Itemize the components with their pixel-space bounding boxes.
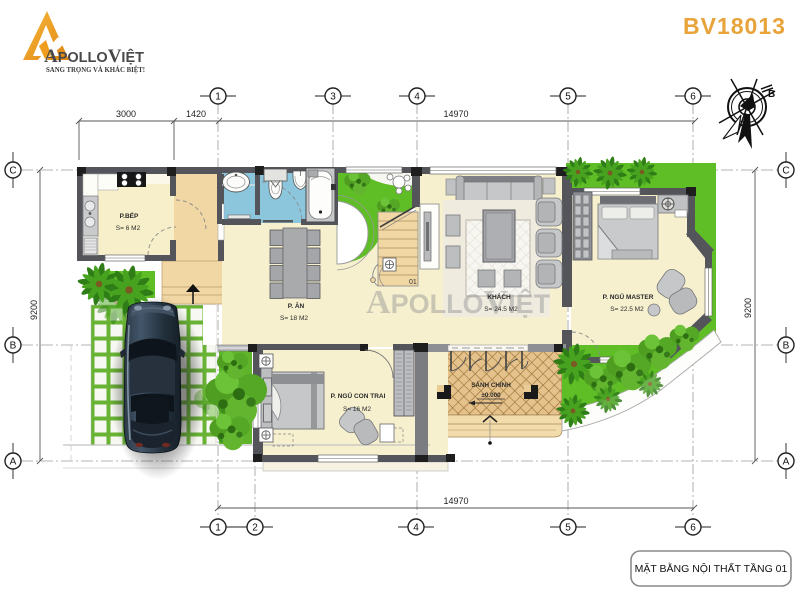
svg-text:S= 22.5 M2: S= 22.5 M2 [610, 306, 644, 313]
svg-text:3: 3 [330, 92, 336, 103]
svg-text:±0.000: ±0.000 [481, 392, 501, 399]
svg-text:4: 4 [413, 523, 419, 534]
svg-text:9200: 9200 [29, 300, 39, 320]
svg-text:1420: 1420 [186, 109, 206, 119]
svg-text:P. NGỦ MASTER: P. NGỦ MASTER [603, 292, 654, 301]
svg-text:14970: 14970 [443, 109, 468, 119]
svg-text:14970: 14970 [443, 496, 468, 506]
svg-text:MẶT BẰNG NỘI THẤT TẦNG 01: MẶT BẰNG NỘI THẤT TẦNG 01 [635, 562, 788, 575]
svg-text:4: 4 [414, 92, 420, 103]
svg-text:S= 24.5 M2: S= 24.5 M2 [484, 306, 518, 313]
svg-text:P. ĂN: P. ĂN [288, 301, 305, 310]
svg-text:P. NGỦ CON TRAI: P. NGỦ CON TRAI [331, 391, 386, 400]
svg-text:1: 1 [215, 92, 221, 103]
svg-text:9200: 9200 [743, 298, 753, 318]
svg-text:B: B [10, 341, 17, 352]
svg-text:6: 6 [690, 92, 696, 103]
svg-text:5: 5 [565, 523, 571, 534]
svg-text:APOLLOVIỆT: APOLLOVIỆT [366, 284, 551, 321]
svg-text:C: C [782, 166, 789, 177]
svg-text:S= 18 M2: S= 18 M2 [280, 315, 308, 322]
svg-text:SANG TRỌNG VÀ KHÁC BIỆT!: SANG TRỌNG VÀ KHÁC BIỆT! [46, 66, 145, 74]
svg-text:SẢNH CHÍNH: SẢNH CHÍNH [471, 380, 511, 389]
svg-text:APOLLOVIỆT: APOLLOVIỆT [44, 46, 144, 67]
svg-text:KHÁCH: KHÁCH [487, 292, 511, 301]
svg-text:2: 2 [252, 523, 258, 534]
svg-text:3000: 3000 [116, 109, 136, 119]
svg-text:B: B [768, 89, 775, 100]
svg-text:S= 6 M2: S= 6 M2 [116, 225, 141, 232]
svg-text:6: 6 [690, 523, 696, 534]
svg-text:B: B [783, 341, 790, 352]
svg-text:A: A [783, 457, 790, 468]
svg-text:A: A [10, 457, 17, 468]
svg-text:5: 5 [565, 92, 571, 103]
svg-text:1: 1 [215, 523, 221, 534]
svg-text:BV18013: BV18013 [683, 13, 786, 39]
svg-text:S= 16 M2: S= 16 M2 [343, 406, 371, 413]
svg-text:C: C [9, 166, 16, 177]
svg-text:01: 01 [409, 279, 417, 286]
